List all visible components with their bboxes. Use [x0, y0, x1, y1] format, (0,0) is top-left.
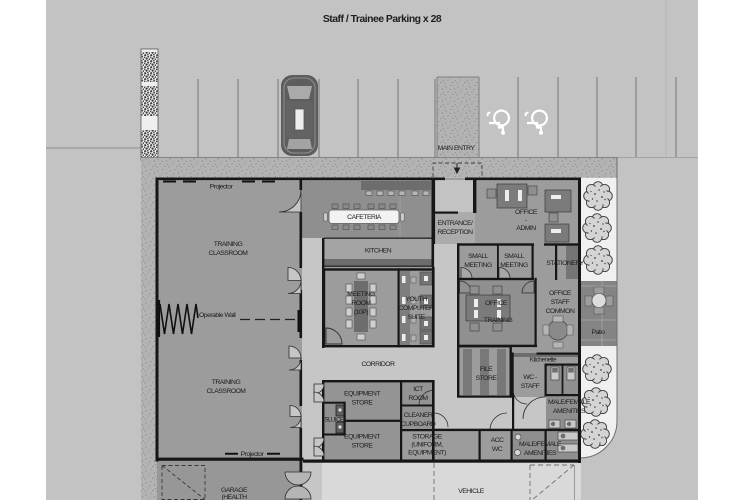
svg-text:TRAINING: TRAINING: [484, 317, 513, 324]
svg-text:STORE: STORE: [352, 443, 374, 450]
svg-text:ICT: ICT: [413, 386, 423, 393]
svg-text:STORE: STORE: [352, 400, 374, 407]
svg-text:STAFF: STAFF: [551, 299, 570, 306]
svg-text:MALE/FEMALE: MALE/FEMALE: [519, 441, 562, 448]
svg-text:-: -: [525, 217, 527, 224]
svg-text:MEETING: MEETING: [347, 291, 375, 298]
svg-text:WC -: WC -: [523, 374, 537, 381]
svg-text:COMPUTER: COMPUTER: [399, 305, 434, 312]
svg-text:Staff / Trainee Parking x 28: Staff / Trainee Parking x 28: [323, 14, 442, 25]
svg-text:SLUICE: SLUICE: [324, 417, 344, 424]
svg-text:TRAINING: TRAINING: [214, 241, 243, 248]
svg-text:TRAINING: TRAINING: [212, 379, 241, 386]
svg-text:ADMIN: ADMIN: [516, 225, 536, 232]
svg-text:ENTRANCE/: ENTRANCE/: [438, 220, 473, 227]
svg-text:CORRIDOR: CORRIDOR: [361, 361, 395, 368]
svg-text:(HEALTH: (HEALTH: [221, 494, 247, 500]
svg-text:ROOM: ROOM: [408, 395, 428, 402]
svg-text:OFFICE: OFFICE: [515, 209, 538, 216]
svg-text:MALE/FEMALE: MALE/FEMALE: [548, 399, 591, 406]
svg-text:YOUTH: YOUTH: [405, 296, 427, 303]
svg-text:EQUIPMENT): EQUIPMENT): [408, 450, 446, 457]
svg-text:STORAGE: STORAGE: [412, 434, 443, 441]
svg-text:CAFETERIA: CAFETERIA: [347, 214, 382, 221]
svg-text:MAIN ENTRY: MAIN ENTRY: [438, 145, 476, 152]
svg-text:(10P): (10P): [354, 309, 368, 316]
svg-text:FILE: FILE: [480, 366, 493, 373]
svg-text:ROOM: ROOM: [351, 300, 371, 307]
svg-text:(UNIFORM,: (UNIFORM,: [411, 442, 443, 449]
svg-text:COMMON: COMMON: [546, 308, 575, 315]
svg-text:SMALL: SMALL: [504, 253, 525, 260]
svg-text:STORE: STORE: [476, 375, 498, 382]
svg-text:CLASSROOM: CLASSROOM: [209, 250, 249, 257]
svg-text:Projector: Projector: [210, 184, 234, 191]
svg-text:RECEPTION: RECEPTION: [437, 229, 473, 236]
svg-text:EQUIPMENT: EQUIPMENT: [344, 391, 380, 398]
svg-text:Projector: Projector: [241, 451, 265, 458]
svg-text:CLASSROOM: CLASSROOM: [207, 388, 247, 395]
svg-text:STATIONERY: STATIONERY: [546, 260, 584, 267]
svg-text:MEETING: MEETING: [464, 262, 492, 269]
svg-text:Patio: Patio: [592, 329, 606, 336]
svg-text:CUPBOARD: CUPBOARD: [401, 421, 436, 428]
svg-text:WC: WC: [492, 446, 503, 453]
svg-text:OFFICE: OFFICE: [549, 290, 572, 297]
svg-text:AMENITIES: AMENITIES: [524, 450, 557, 457]
svg-text:SUITE: SUITE: [407, 314, 425, 321]
svg-text:STAFF: STAFF: [521, 383, 540, 390]
svg-text:CLEANER: CLEANER: [404, 412, 433, 419]
svg-text:KITCHEN: KITCHEN: [365, 248, 392, 255]
svg-text:SMALL: SMALL: [468, 253, 489, 260]
svg-text:OFFICE: OFFICE: [485, 300, 508, 307]
svg-text:VEHICLE: VEHICLE: [458, 488, 485, 495]
svg-text:MEETING: MEETING: [500, 262, 528, 269]
svg-text:EQUIPMENT: EQUIPMENT: [344, 434, 380, 441]
svg-text:GARAGE: GARAGE: [221, 487, 248, 494]
svg-text:Kitchenette: Kitchenette: [530, 357, 557, 364]
svg-text:AMENITIES: AMENITIES: [553, 408, 586, 415]
svg-text:Operable Wall: Operable Wall: [199, 312, 236, 319]
svg-text:ACC: ACC: [491, 437, 504, 444]
